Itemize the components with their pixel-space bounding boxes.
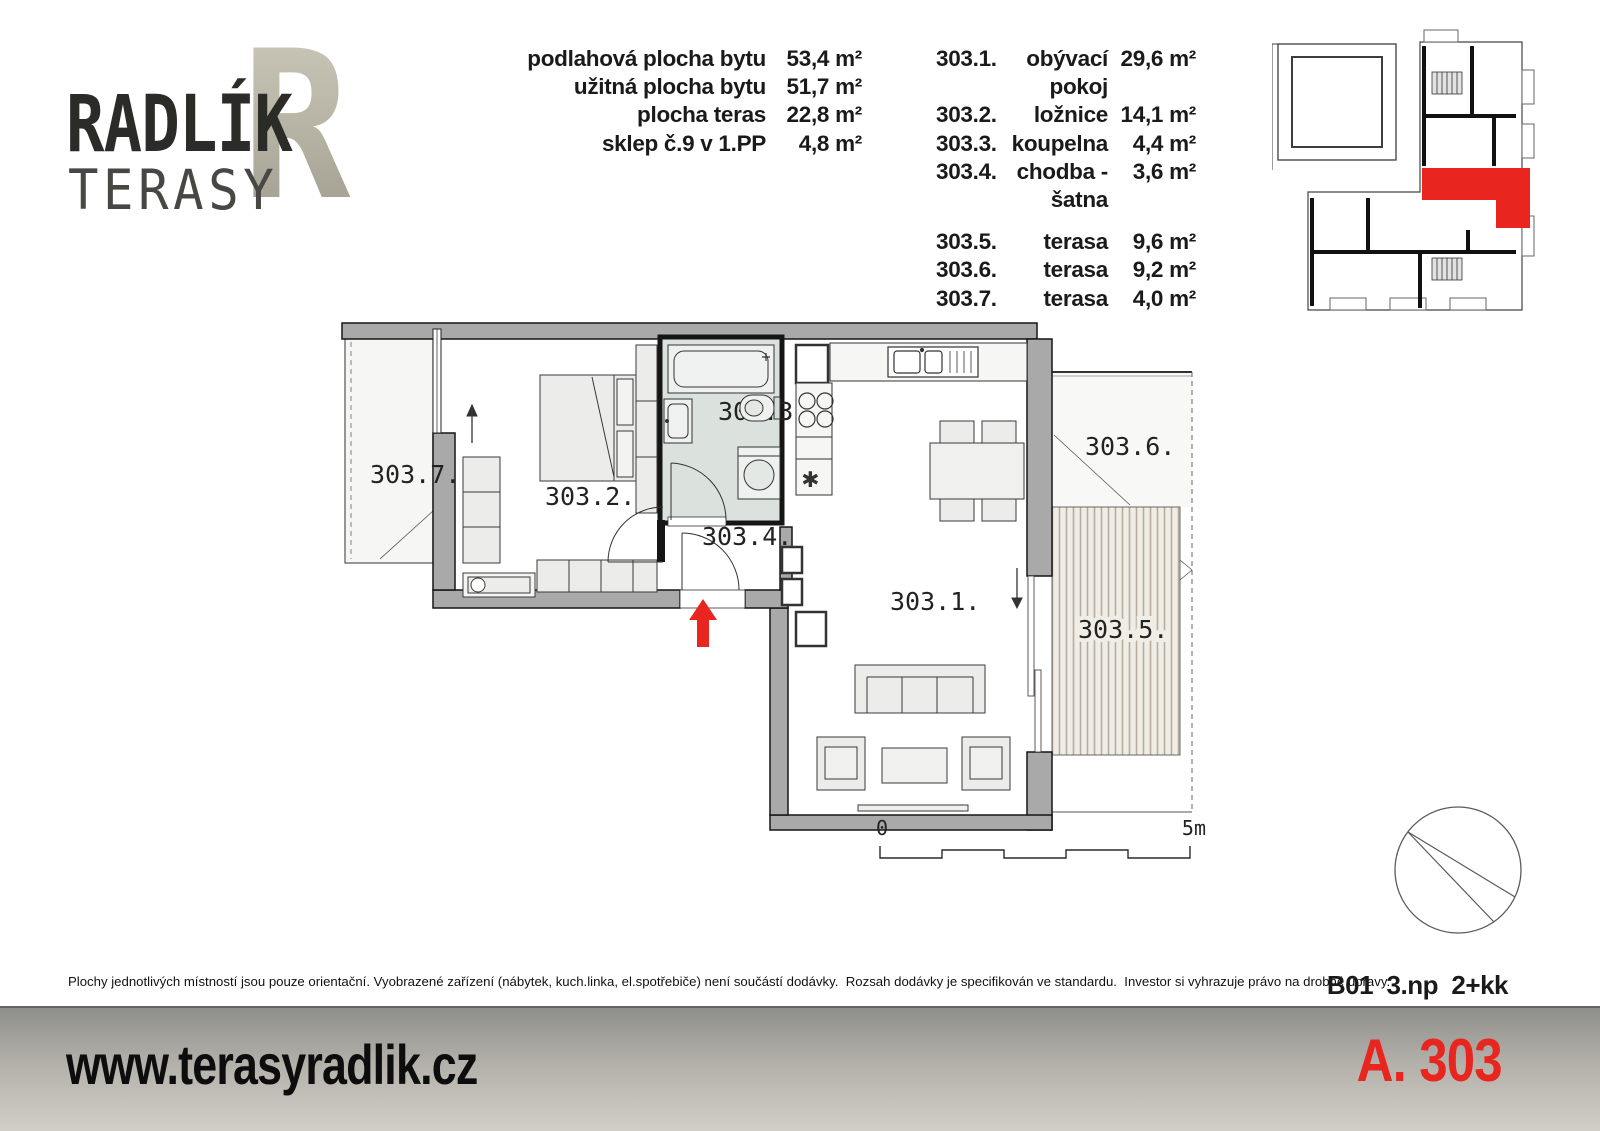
summary-label: podlahová plocha bytu [527,45,766,73]
scale-end-label: 5m [1182,816,1206,840]
summary-row: podlahová plocha bytu53,4 m² [470,45,862,73]
washing-machine [738,447,780,499]
summary-row: plocha teras22,8 m² [470,101,862,129]
summary-row: užitná plocha bytu51,7 m² [470,73,862,101]
terrace-303-7 [345,329,433,563]
logo-title: RADLÍK [66,79,293,170]
terrace6-label: 303.6. [1085,432,1175,461]
room-id: 303.1. [936,45,1002,101]
summary-row: sklep č.9 v 1.PP4,8 m² [470,130,862,158]
summary-label: sklep č.9 v 1.PP [602,130,766,158]
room-id: 303.2. [936,101,1002,129]
room-row: 303.4.chodba - šatna3,6 m² [936,158,1196,214]
bedroom-door [608,507,663,562]
unit-code: A. 303 [1357,1026,1502,1095]
unit-spec: B01 3.np 2+kk [1290,970,1508,1001]
room-id: 303.5. [936,228,1002,256]
toilet [740,395,780,421]
brand-logo: R RADLÍK TERASY [58,25,388,215]
summary-value: 4,8 m² [766,130,862,158]
footer-band: www.terasyradlik.cz A. 303 [0,1006,1600,1131]
room-row: 303.2.ložnice14,1 m² [936,101,1196,129]
room-area: 14,1 m² [1108,101,1196,129]
hall-divider-wall [657,520,665,562]
room-name: terasa [1002,285,1108,313]
room-name: koupelna [1002,130,1108,158]
room-area: 9,2 m² [1108,256,1196,284]
hall-label: 303.4. [702,522,792,551]
summary-value: 53,4 m² [766,45,862,73]
room-list: 303.1.obývací pokoj29,6 m² 303.2.ložnice… [936,45,1196,313]
room-area: 29,6 m² [1108,45,1196,101]
room-row: 303.6.terasa9,2 m² [936,256,1196,284]
terrace-303-5 [1052,507,1192,812]
floor-plan-drawing: 303.3. [330,315,1210,880]
wardrobe-column [636,345,657,513]
room-id: 303.4. [936,158,1002,214]
room-area: 4,0 m² [1108,285,1196,313]
kitchen-sink [888,347,978,377]
tv-board [858,805,968,811]
svg-text:TERASY: TERASY [68,159,278,215]
svg-text:RADLÍK: RADLÍK [66,79,293,170]
summary-value: 51,7 m² [766,73,862,101]
bath-sink [664,399,692,443]
logo-subtitle: TERASY [68,159,278,215]
room-row: 303.7.terasa4,0 m² [936,285,1196,313]
dining-table-set [930,421,1024,521]
floor-plan-sheet: R RADLÍK TERASY podlahová plocha bytu53,… [0,0,1600,1131]
summary-value: 22,8 m² [766,101,862,129]
summary-label: plocha teras [637,101,766,129]
room-id: 303.6. [936,256,1002,284]
terrace5-label: 303.5. [1078,615,1168,644]
room-row: 303.1.obývací pokoj29,6 m² [936,45,1196,101]
terrace7-label: 303.7. [370,460,460,489]
area-summary: podlahová plocha bytu53,4 m² užitná ploc… [470,45,862,158]
room-name: terasa [1002,228,1108,256]
bedroom-window [433,329,441,433]
bedroom-303-2: 303.2. [463,345,657,597]
room-area: 4,4 m² [1108,130,1196,158]
orientation-compass [1370,780,1550,960]
living-room-303-1: 303.1. ✱ [782,343,1041,811]
scale-start-label: 0 [876,816,888,840]
room-id: 303.3. [936,130,1002,158]
locator-roof-block [1272,44,1396,170]
room-name: obývací pokoj [1002,45,1108,101]
boiler-symbol: ✱ [802,461,819,494]
bed [540,375,636,481]
website-text: www.terasyradlik.cz [66,1032,477,1097]
living-label: 303.1. [890,587,980,616]
room-id: 303.7. [936,285,1002,313]
bench-row [537,560,657,592]
bathtub [668,345,774,393]
disclaimer-text: Plochy jednotlivých místností jsou pouze… [68,974,1390,989]
room-row: 303.3.koupelna4,4 m² [936,130,1196,158]
summary-label: užitná plocha bytu [574,73,766,101]
bathroom-303-3: 303.3. [660,337,808,526]
step-down-arrow [1012,568,1022,608]
building-locator-map [1272,20,1540,312]
room-name: ložnice [1002,101,1108,129]
terrace-door [1028,576,1041,752]
room-name: terasa [1002,256,1108,284]
coffee-table [882,748,947,783]
room-area: 3,6 m² [1108,158,1196,214]
cabinet-column [463,457,500,563]
north-arrow-bedroom [467,405,477,443]
sofa [855,665,985,713]
room-area: 9,6 m² [1108,228,1196,256]
room-name: chodba - šatna [1002,158,1108,214]
desk [463,573,535,597]
room-row: 303.5.terasa9,6 m² [936,228,1196,256]
bedroom-label: 303.2. [545,482,635,511]
